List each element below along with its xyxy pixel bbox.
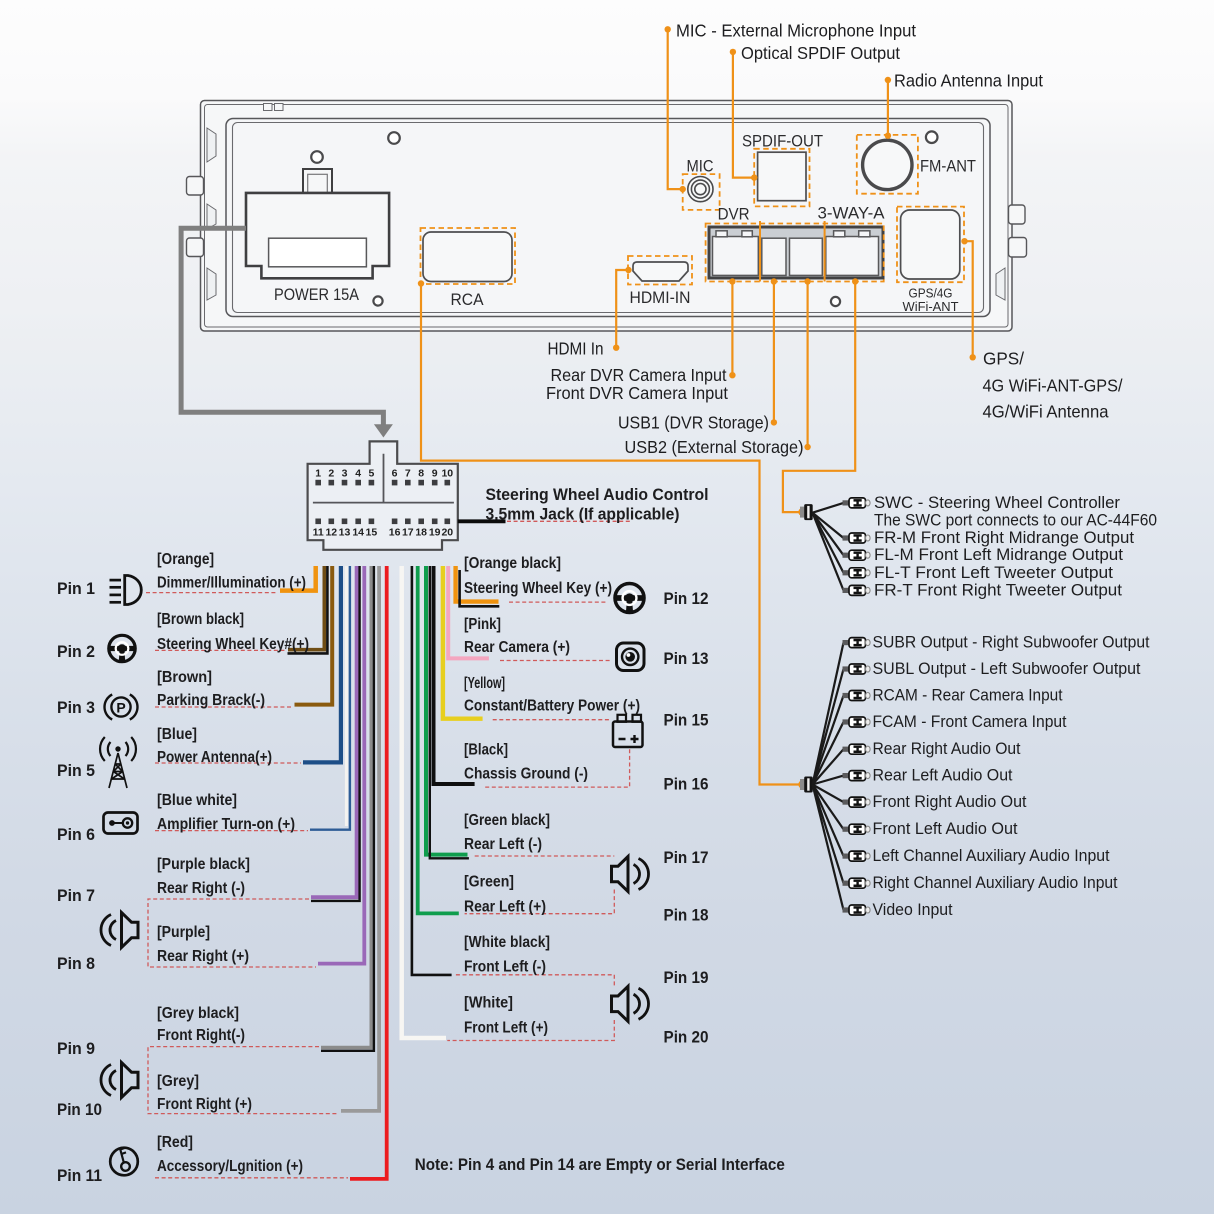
svg-text:Radio Antenna Input: Radio Antenna Input bbox=[894, 71, 1043, 91]
svg-text:Constant/Battery Power (+): Constant/Battery Power (+) bbox=[464, 698, 640, 715]
svg-text:3.5mm Jack (If applicable): 3.5mm Jack (If applicable) bbox=[486, 506, 680, 524]
svg-text:16: 16 bbox=[389, 527, 401, 539]
svg-text:DVR: DVR bbox=[718, 205, 750, 224]
svg-text:[Blue]: [Blue] bbox=[157, 726, 197, 743]
svg-text:Amplifier Turn-on (+): Amplifier Turn-on (+) bbox=[157, 816, 295, 833]
svg-text:18: 18 bbox=[415, 527, 427, 539]
svg-text:SWC - Steering Wheel Controlle: SWC - Steering Wheel Controller bbox=[874, 494, 1121, 512]
svg-text:FCAM - Front Camera Input: FCAM - Front Camera Input bbox=[873, 713, 1067, 731]
svg-text:4G WiFi-ANT-GPS/: 4G WiFi-ANT-GPS/ bbox=[983, 376, 1123, 396]
svg-text:[Yellow]: [Yellow] bbox=[464, 675, 505, 692]
svg-text:[Orange]: [Orange] bbox=[157, 551, 214, 568]
svg-text:Note: Pin 4 and Pin 14 are Emp: Note: Pin 4 and Pin 14 are Empty or Seri… bbox=[415, 1156, 785, 1174]
svg-text:Rear DVR Camera Input: Rear DVR Camera Input bbox=[551, 365, 727, 385]
svg-text:Pin 20: Pin 20 bbox=[664, 1029, 709, 1047]
svg-text:Video Input: Video Input bbox=[873, 901, 953, 919]
svg-text:The SWC port connects to our A: The SWC port connects to our AC-44F60 bbox=[874, 511, 1157, 529]
svg-text:Pin 10: Pin 10 bbox=[57, 1101, 102, 1119]
svg-text:4: 4 bbox=[355, 468, 361, 480]
svg-text:15: 15 bbox=[366, 527, 378, 539]
svg-text:FR-M Front Right Midrange Outp: FR-M Front Right Midrange Output bbox=[874, 529, 1134, 547]
svg-text:Rear Right (+): Rear Right (+) bbox=[157, 948, 249, 965]
svg-text:Left Channel Auxiliary Audio I: Left Channel Auxiliary Audio Input bbox=[873, 847, 1110, 865]
svg-text:Front Left (+): Front Left (+) bbox=[464, 1020, 548, 1037]
svg-text:Front Right Audio Out: Front Right Audio Out bbox=[873, 793, 1027, 811]
svg-text:Pin 5: Pin 5 bbox=[57, 762, 95, 780]
svg-text:10: 10 bbox=[441, 468, 453, 480]
svg-text:[White black]: [White black] bbox=[464, 934, 550, 951]
svg-text:Optical SPDIF Output: Optical SPDIF Output bbox=[741, 43, 900, 63]
svg-text:Steering Wheel Audio Control: Steering Wheel Audio Control bbox=[486, 486, 709, 504]
svg-text:Pin 3: Pin 3 bbox=[57, 699, 95, 717]
svg-text:Accessory/Lgnition (+): Accessory/Lgnition (+) bbox=[157, 1158, 303, 1175]
svg-text:USB1 (DVR Storage): USB1 (DVR Storage) bbox=[618, 413, 769, 433]
svg-text:3-WAY-A: 3-WAY-A bbox=[818, 204, 886, 223]
svg-text:[Black]: [Black] bbox=[464, 741, 508, 758]
svg-text:Power Antenna(+): Power Antenna(+) bbox=[157, 749, 272, 766]
svg-text:SUBL Output - Left Subwoofer O: SUBL Output - Left Subwoofer Output bbox=[873, 660, 1141, 678]
svg-text:[Purple black]: [Purple black] bbox=[157, 856, 250, 873]
svg-text:[Green]: [Green] bbox=[464, 873, 514, 890]
svg-text:GPS/: GPS/ bbox=[983, 349, 1024, 369]
svg-text:HDMI In: HDMI In bbox=[548, 339, 604, 359]
svg-text:Front Right(-): Front Right(-) bbox=[157, 1027, 245, 1044]
svg-text:14: 14 bbox=[352, 527, 364, 539]
svg-text:Rear Right (-): Rear Right (-) bbox=[157, 880, 245, 897]
svg-text:Rear Right Audio Out: Rear Right Audio Out bbox=[873, 740, 1021, 758]
svg-text:[Grey black]: [Grey black] bbox=[157, 1005, 239, 1022]
svg-text:13: 13 bbox=[339, 527, 351, 539]
svg-text:Pin 13: Pin 13 bbox=[664, 650, 709, 668]
svg-text:[Brown]: [Brown] bbox=[157, 669, 212, 686]
svg-text:Pin 12: Pin 12 bbox=[664, 590, 709, 608]
svg-text:Rear Left Audio Out: Rear Left Audio Out bbox=[873, 767, 1013, 785]
svg-text:Dimmer/Illumination (+): Dimmer/Illumination (+) bbox=[157, 575, 306, 592]
svg-text:Pin 18: Pin 18 bbox=[664, 906, 709, 924]
svg-text:Front Left Audio Out: Front Left Audio Out bbox=[873, 820, 1018, 838]
svg-text:Pin 19: Pin 19 bbox=[664, 969, 709, 987]
svg-text:POWER 15A: POWER 15A bbox=[274, 285, 360, 304]
svg-text:3: 3 bbox=[342, 468, 348, 480]
svg-text:1: 1 bbox=[315, 468, 321, 480]
svg-text:4G/WiFi Antenna: 4G/WiFi Antenna bbox=[983, 402, 1109, 422]
svg-text:2: 2 bbox=[328, 468, 334, 480]
svg-text:P: P bbox=[116, 700, 125, 716]
svg-text:8: 8 bbox=[418, 468, 424, 480]
svg-text:SPDIF-OUT: SPDIF-OUT bbox=[742, 132, 823, 151]
svg-text:USB2 (External Storage): USB2 (External Storage) bbox=[625, 437, 804, 457]
svg-text:Pin 8: Pin 8 bbox=[57, 955, 95, 973]
svg-text:19: 19 bbox=[429, 527, 441, 539]
svg-text:7: 7 bbox=[405, 468, 411, 480]
svg-text:HDMI-IN: HDMI-IN bbox=[630, 288, 691, 307]
svg-text:FL-T Front Left Tweeter Output: FL-T Front Left Tweeter Output bbox=[874, 564, 1113, 582]
svg-text:11: 11 bbox=[313, 527, 324, 539]
svg-text:Pin 9: Pin 9 bbox=[57, 1040, 95, 1058]
svg-text:SUBR Output - Right Subwoofer: SUBR Output - Right Subwoofer Output bbox=[873, 634, 1150, 652]
svg-text:Rear Left (+): Rear Left (+) bbox=[464, 899, 546, 916]
svg-text:WiFi-ANT: WiFi-ANT bbox=[903, 299, 959, 314]
svg-text:Front Left (-): Front Left (-) bbox=[464, 958, 546, 975]
svg-text:MIC - External Microphone Inpu: MIC - External Microphone Input bbox=[676, 21, 916, 41]
svg-text:[Pink]: [Pink] bbox=[464, 616, 501, 633]
svg-text:FM-ANT: FM-ANT bbox=[920, 157, 976, 176]
svg-text:6: 6 bbox=[392, 468, 398, 480]
svg-text:Pin 2: Pin 2 bbox=[57, 643, 95, 661]
svg-text:Pin 7: Pin 7 bbox=[57, 887, 95, 905]
svg-text:5: 5 bbox=[368, 468, 374, 480]
svg-text:12: 12 bbox=[325, 527, 337, 539]
svg-text:[Orange black]: [Orange black] bbox=[464, 555, 561, 572]
svg-text:Pin 11: Pin 11 bbox=[57, 1167, 102, 1185]
svg-text:Pin 1: Pin 1 bbox=[57, 580, 95, 598]
svg-text:Parking Brack(-): Parking Brack(-) bbox=[157, 692, 265, 709]
svg-text:Front DVR Camera Input: Front DVR Camera Input bbox=[546, 383, 728, 403]
svg-text:[Green black]: [Green black] bbox=[464, 812, 550, 829]
svg-text:Pin 16: Pin 16 bbox=[664, 776, 709, 794]
svg-text:Pin 15: Pin 15 bbox=[664, 712, 709, 730]
svg-text:20: 20 bbox=[441, 527, 453, 539]
svg-text:Right Channel Auxiliary Audio: Right Channel Auxiliary Audio Input bbox=[873, 874, 1118, 892]
svg-text:17: 17 bbox=[402, 527, 414, 539]
svg-text:Steering Wheel Key#(+): Steering Wheel Key#(+) bbox=[157, 636, 309, 653]
svg-text:RCA: RCA bbox=[451, 290, 485, 309]
svg-text:RCAM - Rear Camera Input: RCAM - Rear Camera Input bbox=[873, 687, 1063, 705]
svg-text:Chassis Ground (-): Chassis Ground (-) bbox=[464, 765, 588, 782]
svg-text:Steering Wheel Key (+): Steering Wheel Key (+) bbox=[464, 580, 612, 597]
svg-text:Rear Camera (+): Rear Camera (+) bbox=[464, 639, 570, 656]
svg-text:[White]: [White] bbox=[464, 994, 513, 1011]
svg-text:MIC: MIC bbox=[687, 157, 714, 176]
svg-text:Pin 17: Pin 17 bbox=[664, 849, 709, 867]
svg-text:[Blue white]: [Blue white] bbox=[157, 792, 237, 809]
svg-text:[Brown black]: [Brown black] bbox=[157, 611, 244, 628]
svg-text:Front Right (+): Front Right (+) bbox=[157, 1096, 252, 1113]
svg-text:[Purple]: [Purple] bbox=[157, 924, 210, 941]
svg-text:FR-T Front Right Tweeter Outpu: FR-T Front Right Tweeter Output bbox=[874, 581, 1122, 599]
svg-text:FL-M Front Left Midrange Outpu: FL-M Front Left Midrange Output bbox=[874, 546, 1123, 564]
svg-text:9: 9 bbox=[432, 468, 438, 480]
svg-text:Rear Left (-): Rear Left (-) bbox=[464, 836, 542, 853]
svg-text:[Grey]: [Grey] bbox=[157, 1073, 199, 1090]
svg-text:[Red]: [Red] bbox=[157, 1134, 193, 1151]
svg-text:Pin 6: Pin 6 bbox=[57, 826, 95, 844]
